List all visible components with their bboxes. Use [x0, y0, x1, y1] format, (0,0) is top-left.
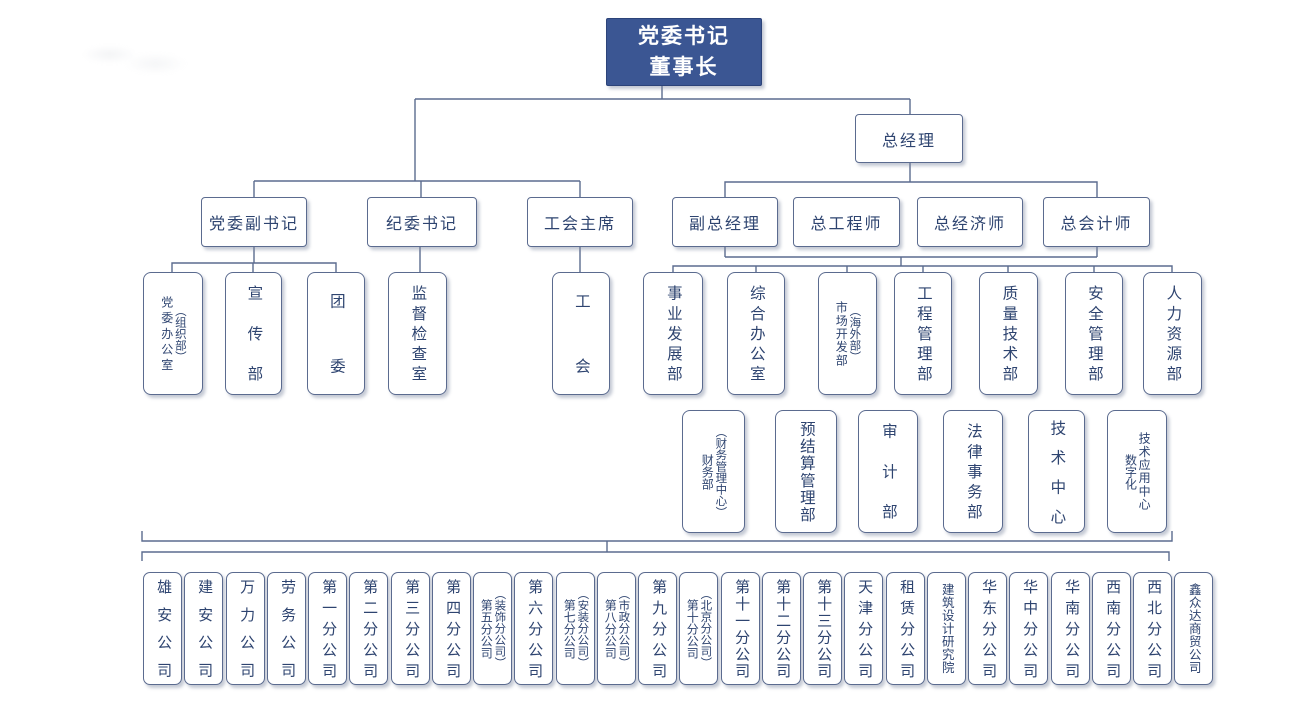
node-engineering-management-dept: 工程管理部 — [894, 272, 952, 395]
node-subsidiary-branch-3: 第三分公司 — [391, 572, 430, 685]
node-label: 华中分公司 — [1020, 579, 1037, 684]
node-audit-dept: 审计部 — [858, 410, 918, 533]
node-label: 预结算管理部 — [797, 421, 815, 523]
node-label: 事业发展部 — [664, 285, 682, 386]
node-label: 第一分公司 — [319, 579, 336, 684]
node-general-office: 综合办公室 — [727, 272, 785, 395]
node-subsidiary-branch-4: 第四分公司 — [432, 572, 471, 685]
node-label: 质量技术部 — [1000, 285, 1018, 386]
node-sublabel: （组织部） — [174, 305, 186, 363]
node-chief-accountant: 总会计师 — [1043, 197, 1150, 247]
node-label: 第十三分公司 — [814, 579, 831, 680]
node-party-secretary-chairman: 党委书记 董事长 — [606, 18, 762, 86]
node-supervision-inspection-office: 监督检查室 — [388, 272, 447, 395]
node-label: 技术中心 — [1048, 420, 1066, 538]
node-deputy-general-manager: 副总经理 — [672, 197, 778, 247]
node-label: 总经济师 — [934, 210, 1006, 234]
node-subsidiary-huadong: 华东分公司 — [968, 572, 1007, 685]
node-sublabel: 数字化 — [1124, 454, 1137, 490]
node-label: 工会主席 — [544, 210, 616, 234]
node-label: 第三分公司 — [402, 579, 419, 684]
node-label: 第八分公司 — [604, 599, 617, 659]
node-subsidiary-xiongan: 雄安公司 — [143, 572, 182, 685]
node-label: 人力资源部 — [1164, 285, 1182, 386]
node-subsidiary-jianan: 建安公司 — [184, 572, 223, 685]
node-technology-center: 技术中心 — [1028, 410, 1085, 533]
node-label: 第十一分公司 — [732, 579, 749, 680]
node-subsidiary-branch-8-municipal: 第八分公司 （市政分公司） — [597, 572, 636, 685]
node-general-manager: 总经理 — [855, 114, 963, 163]
node-label: 纪委书记 — [386, 210, 458, 234]
node-label: 华南分公司 — [1062, 579, 1079, 684]
node-label: 综合办公室 — [747, 285, 765, 386]
node-subsidiary-branch-6: 第六分公司 — [514, 572, 553, 685]
node-label: 党委书记 — [638, 21, 730, 53]
node-label: 技术应用中心 — [1138, 432, 1151, 511]
node-subsidiary-huanan: 华南分公司 — [1051, 572, 1090, 685]
node-subsidiary-branch-12: 第十二分公司 — [762, 572, 801, 685]
node-label: 第五分公司 — [480, 599, 493, 659]
node-label: 工程管理部 — [914, 285, 932, 386]
node-subsidiary-xibei: 西北分公司 — [1133, 572, 1172, 685]
node-subsidiary-branch-7-installation: 第七分公司 （安装分公司） — [556, 572, 595, 685]
node-label: 总经理 — [882, 127, 936, 151]
node-subsidiary-branch-1: 第一分公司 — [308, 572, 347, 685]
node-label: 董事长 — [650, 52, 719, 84]
node-subsidiary-branch-13: 第十三分公司 — [803, 572, 842, 685]
node-safety-management-dept: 安全管理部 — [1065, 272, 1123, 395]
org-chart: 党委书记 董事长 总经理 党委副书记 纪委书记 工会主席 副总经理 总工程师 总… — [0, 0, 1296, 720]
node-subsidiary-labor-services: 劳务公司 — [267, 572, 306, 685]
node-label: 市场开发部 — [835, 301, 848, 367]
node-subsidiary-leasing: 租赁分公司 — [886, 572, 925, 685]
node-party-deputy-secretary: 党委副书记 — [201, 197, 307, 247]
node-subsidiary-branch-11: 第十一分公司 — [721, 572, 760, 685]
node-union-chairman: 工会主席 — [527, 197, 633, 247]
node-subsidiary-tianjin: 天津分公司 — [844, 572, 883, 685]
node-label: 建筑设计研究院 — [939, 583, 953, 674]
node-label: 第六分公司 — [525, 579, 542, 684]
node-label: 团委 — [327, 293, 345, 423]
node-sublabel: （北京分公司） — [699, 588, 711, 669]
node-subsidiary-xinzhongda-trading: 鑫众达商贸公司 — [1174, 572, 1213, 685]
node-human-resources-dept: 人力资源部 — [1143, 272, 1202, 395]
node-label: 华东分公司 — [979, 579, 996, 684]
node-label: 第十分公司 — [686, 599, 699, 659]
node-label: 租赁分公司 — [897, 579, 914, 684]
node-label: 总工程师 — [810, 210, 882, 234]
node-subsidiary-branch-5-decoration: 第五分公司 （装饰分公司） — [473, 572, 512, 685]
node-chief-engineer: 总工程师 — [793, 197, 900, 247]
node-label: 党委办公室 — [160, 296, 173, 374]
node-digital-technology-application-center: 数字化 技术应用中心 — [1107, 410, 1167, 533]
node-label: 工会 — [572, 293, 590, 423]
node-discipline-inspection-secretary: 纪委书记 — [367, 197, 477, 247]
node-youth-league: 团委 — [307, 272, 365, 395]
node-legal-affairs-dept: 法律事务部 — [943, 410, 1003, 533]
node-subsidiary-xinan: 西南分公司 — [1092, 572, 1131, 685]
node-sublabel: （海外部） — [848, 305, 860, 363]
node-label: 法律事务部 — [964, 423, 982, 524]
node-label: 万力公司 — [237, 579, 254, 690]
node-label: 审计部 — [879, 423, 897, 544]
node-subsidiary-branch-10-beijing: 第十分公司 （北京分公司） — [679, 572, 718, 685]
node-label: 雄安公司 — [154, 579, 171, 690]
node-label: 西南分公司 — [1103, 579, 1120, 684]
node-label: 西北分公司 — [1144, 579, 1161, 684]
node-label: 党委副书记 — [209, 210, 299, 234]
node-party-committee-office: 党委办公室 （组织部） — [143, 272, 203, 395]
node-label: 第九分公司 — [649, 579, 666, 684]
node-label: 天津分公司 — [855, 579, 872, 684]
node-subsidiary-huazhong: 华中分公司 — [1009, 572, 1048, 685]
node-label: 劳务公司 — [278, 579, 295, 690]
node-subsidiary-branch-2: 第二分公司 — [349, 572, 388, 685]
node-label: 第四分公司 — [443, 579, 460, 684]
node-sublabel: （市政分公司） — [617, 588, 629, 669]
node-label: 鑫众达商贸公司 — [1186, 583, 1200, 674]
node-label: 副总经理 — [689, 210, 761, 234]
node-label: 监督检查室 — [409, 285, 427, 386]
node-finance-dept: 财务部 （财务管理中心） — [682, 410, 745, 533]
node-subsidiary-architectural-design-institute: 建筑设计研究院 — [927, 572, 966, 685]
node-label: 财务部 — [701, 454, 714, 490]
node-budget-settlement-dept: 预结算管理部 — [775, 410, 837, 533]
node-label: 第七分公司 — [563, 599, 576, 659]
node-sublabel: （安装分公司） — [576, 588, 588, 669]
node-label: 第十二分公司 — [773, 579, 790, 680]
node-sublabel: （财务管理中心） — [714, 426, 726, 518]
node-subsidiary-wanli: 万力公司 — [226, 572, 265, 685]
node-labor-union: 工会 — [552, 272, 610, 395]
node-business-development-dept: 事业发展部 — [643, 272, 703, 395]
node-market-development-dept: 市场开发部 （海外部） — [818, 272, 877, 395]
node-label: 宣传部 — [245, 285, 263, 406]
node-label: 安全管理部 — [1085, 285, 1103, 386]
node-subsidiary-branch-9: 第九分公司 — [638, 572, 677, 685]
node-label: 建安公司 — [195, 579, 212, 690]
node-sublabel: （装饰分公司） — [493, 588, 505, 669]
node-quality-technology-dept: 质量技术部 — [979, 272, 1038, 395]
node-chief-economist: 总经济师 — [917, 197, 1023, 247]
watermark — [75, 36, 190, 82]
node-label: 总会计师 — [1060, 210, 1132, 234]
node-label: 第二分公司 — [360, 579, 377, 684]
node-propaganda-dept: 宣传部 — [225, 272, 282, 395]
